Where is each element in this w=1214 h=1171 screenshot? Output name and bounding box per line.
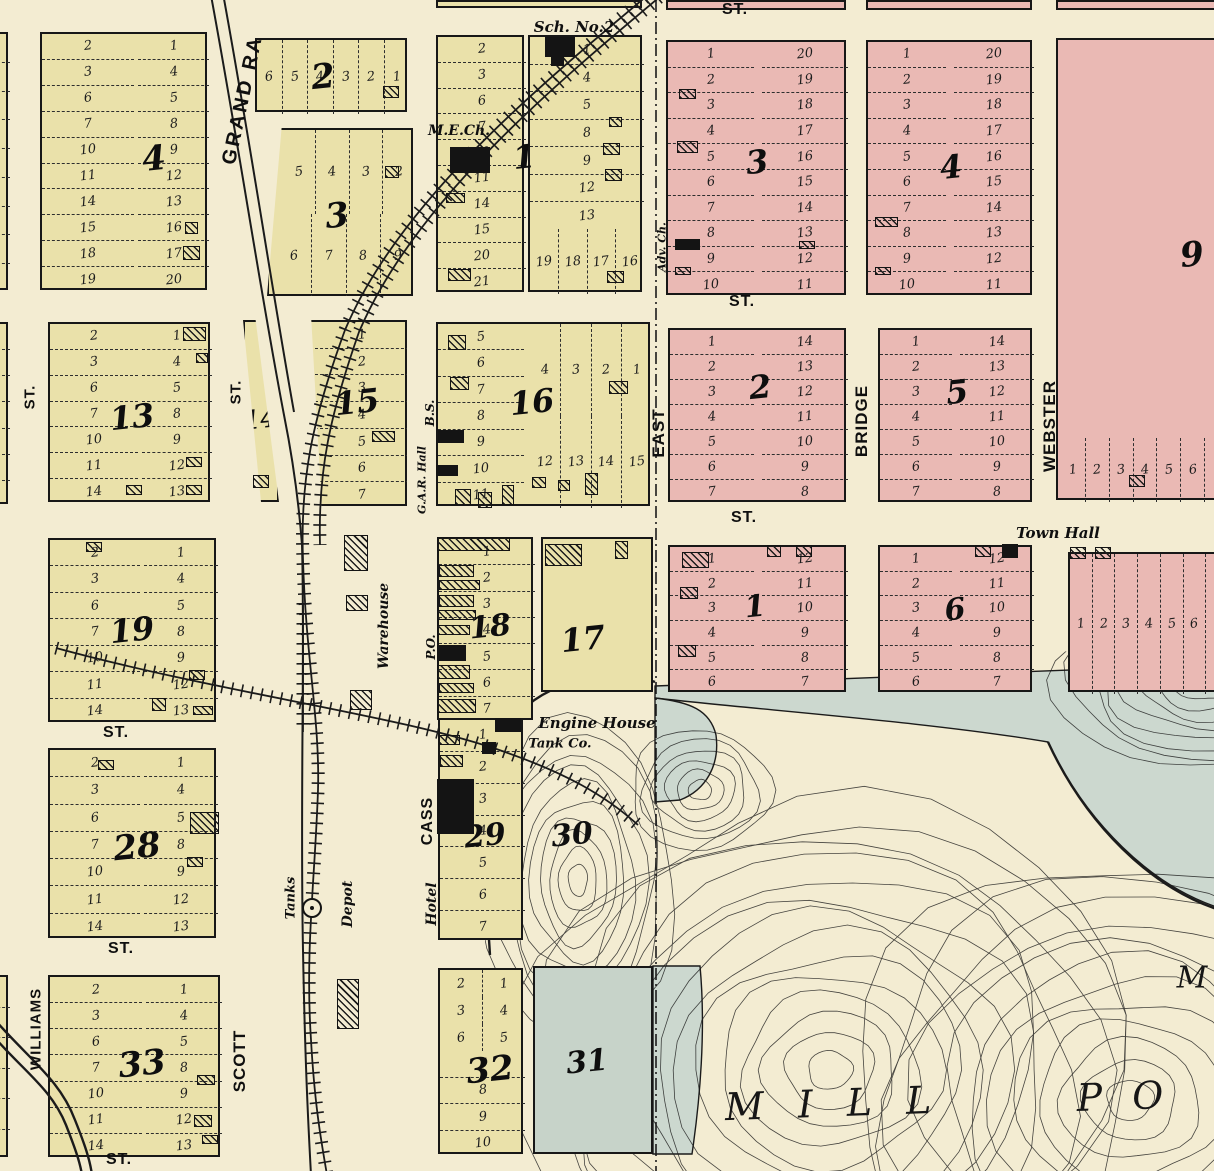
building-hatched xyxy=(183,327,206,341)
street-label-st-5: ST. xyxy=(108,940,134,958)
building-hatched xyxy=(439,595,474,607)
building-hatched xyxy=(502,485,514,505)
building-solid xyxy=(437,779,474,834)
label-warehouse: Warehouse xyxy=(376,583,392,669)
building-hatched xyxy=(455,489,471,505)
building-solid xyxy=(482,742,496,754)
building-hatched xyxy=(532,477,546,488)
building-hatched xyxy=(437,699,476,713)
building-hatched xyxy=(152,698,166,711)
building-hatched xyxy=(337,979,359,1029)
building-hatched xyxy=(86,542,102,552)
building-hatched xyxy=(450,377,469,390)
street-label-cass: CASS xyxy=(419,797,437,845)
pond-label-m: M xyxy=(1177,961,1208,996)
building-hatched xyxy=(350,690,372,710)
label-tank-co: Tank Co. xyxy=(528,737,591,752)
street-label-bridge: BRIDGE xyxy=(852,385,872,457)
building-hatched xyxy=(253,475,269,488)
building-hatched xyxy=(605,169,622,181)
building-hatched xyxy=(439,735,460,745)
building-hatched xyxy=(678,645,696,657)
building-hatched xyxy=(558,480,570,491)
label-bs: B.S. xyxy=(423,400,437,427)
street-label-st-4: ST. xyxy=(103,724,129,742)
building-hatched xyxy=(194,1115,212,1127)
street-label-williams: WILLIAMS xyxy=(28,988,45,1070)
building-hatched xyxy=(446,193,465,203)
building-hatched xyxy=(383,86,399,98)
building-hatched xyxy=(448,335,466,350)
label-engine-house: Engine House xyxy=(538,714,655,732)
label-me-church: M.E.Ch. xyxy=(428,123,490,139)
building-hatched xyxy=(437,665,470,679)
building-solid xyxy=(675,239,700,250)
label-hotel: Hotel xyxy=(424,882,440,925)
label-post-office: P.O. xyxy=(424,634,438,659)
building-hatched xyxy=(385,166,399,178)
label-tanks: Tanks xyxy=(284,877,299,920)
street-label-st-vert-1: ST. xyxy=(22,385,39,410)
building-hatched xyxy=(183,246,200,260)
building-hatched xyxy=(677,141,698,153)
building-hatched xyxy=(585,473,598,495)
building-hatched xyxy=(437,610,476,620)
pond-label-po: PO xyxy=(1076,1072,1194,1120)
building-hatched xyxy=(437,625,470,635)
building-hatched xyxy=(680,587,698,599)
label-depot: Depot xyxy=(340,881,356,928)
building-hatched xyxy=(98,760,114,770)
building-hatched xyxy=(675,267,691,275)
street-label-st-bottom: ST. xyxy=(106,1151,132,1169)
building-hatched xyxy=(186,457,202,467)
building-hatched xyxy=(126,485,142,495)
building-hatched xyxy=(545,544,582,566)
building-hatched xyxy=(346,595,368,611)
building-hatched xyxy=(185,222,198,234)
building-hatched xyxy=(1070,547,1086,559)
building-solid xyxy=(450,147,490,173)
building-solid xyxy=(1002,544,1018,558)
map-canvas[interactable]: 2367101114151819145891213161720465432125… xyxy=(0,0,1214,1171)
building-hatched xyxy=(679,89,696,99)
building-solid xyxy=(437,645,466,661)
label-adv-church: Adv. Ch. xyxy=(656,222,669,272)
building-hatched xyxy=(189,670,205,680)
building-hatched xyxy=(439,683,474,693)
building-hatched xyxy=(439,565,474,577)
building-hatched xyxy=(187,857,203,867)
building-hatched xyxy=(975,545,991,557)
building-hatched xyxy=(193,706,213,715)
building-hatched xyxy=(609,117,622,127)
building-solid xyxy=(551,57,564,66)
building-hatched xyxy=(197,1075,215,1085)
building-hatched xyxy=(609,381,628,394)
pond-label-mill: MILL xyxy=(724,1077,966,1129)
building-hatched xyxy=(875,267,891,275)
block-number-30: 30 xyxy=(549,815,594,854)
building-hatched xyxy=(875,217,898,227)
building-hatched xyxy=(607,271,624,283)
building-hatched xyxy=(1129,475,1145,487)
building-hatched xyxy=(186,485,202,495)
building-solid xyxy=(545,37,575,57)
building-hatched xyxy=(767,545,781,557)
label-gar-hall: G.A.R. Hall xyxy=(416,446,429,514)
street-label-webster: WEBSTER xyxy=(1040,380,1060,472)
building-hatched xyxy=(437,537,510,551)
street-label-scott: SCOTT xyxy=(230,1030,250,1093)
building-hatched xyxy=(478,492,492,508)
building-hatched xyxy=(799,241,815,249)
building-hatched xyxy=(344,535,368,571)
building-hatched xyxy=(603,143,620,155)
building-hatched xyxy=(202,1135,218,1144)
building-solid xyxy=(436,465,458,476)
building-hatched xyxy=(615,541,628,559)
label-school-no-2: Sch. No.2 xyxy=(534,18,614,36)
building-hatched xyxy=(372,431,395,442)
road-line xyxy=(210,0,311,1171)
building-hatched xyxy=(439,580,480,590)
label-town-hall: Town Hall xyxy=(1016,524,1100,542)
street-label-st-3: ST. xyxy=(731,509,757,527)
building-hatched xyxy=(190,812,219,834)
building-solid xyxy=(495,718,521,732)
building-hatched xyxy=(1095,547,1111,559)
water-tank-symbol xyxy=(302,898,322,918)
building-hatched xyxy=(196,353,208,363)
building-hatched xyxy=(796,545,812,557)
street-label-st-vert-2: ST. xyxy=(228,380,245,405)
building-solid xyxy=(438,430,464,443)
building-hatched xyxy=(448,269,471,281)
building-hatched xyxy=(440,755,463,767)
building-hatched xyxy=(682,552,709,568)
street-label-east: EAST xyxy=(649,408,669,457)
road-line xyxy=(0,1020,92,1171)
street-label-st-2: ST. xyxy=(729,293,755,311)
street-label-st-top: ST. xyxy=(722,1,748,19)
